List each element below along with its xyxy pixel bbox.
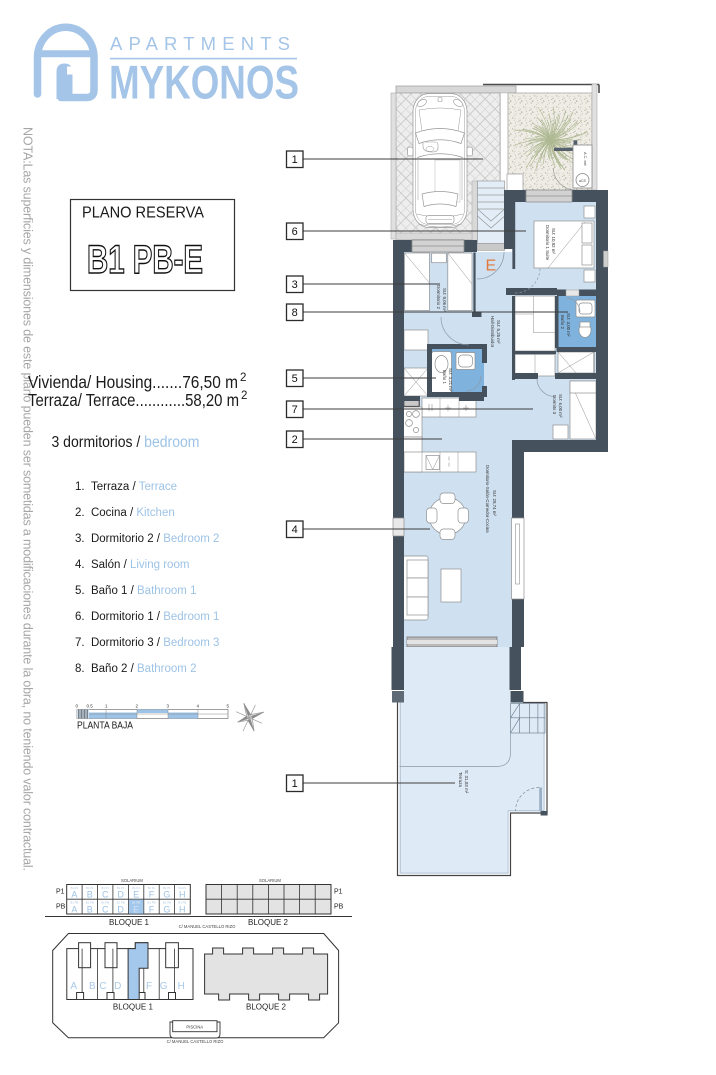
svg-text:H: H <box>179 890 186 900</box>
svg-text:Dormitorio 1 Suite: Dormitorio 1 Suite <box>545 225 550 261</box>
svg-text:A: A <box>70 981 77 992</box>
svg-text:NOTA:Las superficies y dimensi: NOTA:Las superficies y dimensiones de es… <box>21 127 35 871</box>
svg-text:B1 PB: B1 PB <box>117 901 125 905</box>
svg-text:PB: PB <box>334 904 344 911</box>
svg-text:B1 P1: B1 P1 <box>148 886 156 890</box>
svg-text:G: G <box>163 890 170 900</box>
svg-text:H: H <box>178 981 185 992</box>
svg-text:PB: PB <box>56 904 66 911</box>
svg-text:MYKONOS: MYKONOS <box>109 56 299 109</box>
svg-text:C: C <box>102 904 109 914</box>
svg-text:B1 PB: B1 PB <box>163 901 171 905</box>
svg-text:4: 4 <box>292 524 298 536</box>
svg-text:C: C <box>99 981 106 992</box>
svg-text:B1 P1: B1 P1 <box>178 886 186 890</box>
svg-text:Dormitorio 2: Dormitorio 2 <box>436 285 441 309</box>
svg-text:B1 PB: B1 PB <box>70 901 78 905</box>
svg-text:4. Salón / Living room: 4. Salón / Living room <box>75 559 189 571</box>
svg-text:A: A <box>71 904 77 914</box>
svg-text:F: F <box>149 890 155 900</box>
svg-text:C/ MANUEL CASTELLO RIZO: C/ MANUEL CASTELLO RIZO <box>167 1039 225 1044</box>
svg-text:B: B <box>87 904 93 914</box>
svg-text:B1 P1: B1 P1 <box>117 886 125 890</box>
svg-text:6: 6 <box>292 226 298 238</box>
svg-text:3: 3 <box>292 279 298 291</box>
svg-text:SU: 8,06 m²: SU: 8,06 m² <box>442 288 447 312</box>
svg-text:PLANTA BAJA: PLANTA BAJA <box>77 721 133 732</box>
svg-text:Vivienda/ Housing.......76,50: Vivienda/ Housing.......76,50 m <box>28 372 238 392</box>
svg-text:H: H <box>179 904 186 914</box>
svg-text:E: E <box>133 890 139 900</box>
svg-text:8. Baño 2 / Bathroom 2: 8. Baño 2 / Bathroom 2 <box>75 663 196 675</box>
svg-text:Dormito 3: Dormito 3 <box>552 395 557 415</box>
svg-text:1: 1 <box>292 778 298 790</box>
svg-text:D: D <box>117 904 124 914</box>
svg-text:B: B <box>89 981 96 992</box>
svg-text:3. Dormitorio 2 / Bedroom 2: 3. Dormitorio 2 / Bedroom 2 <box>75 533 219 545</box>
svg-text:F: F <box>146 981 152 992</box>
svg-text:P1: P1 <box>56 889 65 896</box>
svg-text:E: E <box>130 981 137 992</box>
svg-text:C: C <box>102 890 109 900</box>
svg-text:S: 31,03 m²: S: 31,03 m² <box>464 770 469 794</box>
svg-text:2: 2 <box>240 372 246 384</box>
svg-text:B1 PB: B1 PB <box>86 901 94 905</box>
svg-text:2. Cocina / Kitchen: 2. Cocina / Kitchen <box>75 507 175 519</box>
svg-text:aCS: aCS <box>579 179 586 183</box>
svg-text:BLOQUE 1: BLOQUE 1 <box>113 1003 154 1012</box>
svg-text:B1 P1: B1 P1 <box>163 886 171 890</box>
svg-text:1: 1 <box>292 154 298 166</box>
svg-text:SOLARIUM: SOLARIUM <box>259 878 281 883</box>
svg-text:C/ MANUEL CASTELLO RIZO: C/ MANUEL CASTELLO RIZO <box>179 924 237 929</box>
svg-text:B1 PB: B1 PB <box>101 901 109 905</box>
svg-text:SU: 5,25 m²: SU: 5,25 m² <box>496 320 501 344</box>
svg-text:B1 P1: B1 P1 <box>71 886 79 890</box>
svg-text:B1 P1: B1 P1 <box>101 886 109 890</box>
svg-text:B1 P1: B1 P1 <box>86 886 94 890</box>
svg-text:5. Baño 1 / Bathroom 1: 5. Baño 1 / Bathroom 1 <box>75 585 196 597</box>
svg-text:SU: 6,00 m²: SU: 6,00 m² <box>558 394 563 418</box>
svg-text:B1 PB: B1 PB <box>132 901 140 905</box>
svg-text:E: E <box>133 904 139 914</box>
svg-text:SU: 10,92 m²: SU: 10,92 m² <box>551 228 556 254</box>
svg-text:PLANO RESERVA: PLANO RESERVA <box>82 205 204 222</box>
svg-text:APARTMENTS: APARTMENTS <box>110 33 297 54</box>
svg-text:D: D <box>114 981 121 992</box>
svg-text:PISCINA: PISCINA <box>186 1025 203 1030</box>
svg-text:A: A <box>71 890 77 900</box>
svg-text:BLOQUE 1: BLOQUE 1 <box>109 918 150 927</box>
svg-text:Terraza/ Terrace............58: Terraza/ Terrace............58,20 m <box>28 390 239 410</box>
svg-text:Hall-Distribuidor: Hall-Distribuidor <box>490 316 495 348</box>
svg-text:SOLARIUM: SOLARIUM <box>121 878 143 883</box>
svg-text:5: 5 <box>292 373 298 385</box>
svg-text:Terraza: Terraza <box>458 772 463 788</box>
svg-text:F: F <box>149 904 155 914</box>
svg-text:D: D <box>117 890 124 900</box>
svg-text:2: 2 <box>241 390 247 402</box>
svg-text:G: G <box>163 904 170 914</box>
svg-text:3 dormitorios / bedroom: 3 dormitorios / bedroom <box>52 434 200 451</box>
svg-text:P1: P1 <box>334 889 343 896</box>
svg-text:Dormitorio-Salón-Comedor-Cocin: Dormitorio-Salón-Comedor-Cocina <box>485 465 490 533</box>
svg-text:B1 PB: B1 PB <box>148 901 156 905</box>
svg-text:BLOQUE 2: BLOQUE 2 <box>248 918 289 927</box>
svg-text:SU: 28,74 m²: SU: 28,74 m² <box>492 490 497 516</box>
svg-text:BLOQUE 2: BLOQUE 2 <box>246 1003 287 1012</box>
svg-text:Baño 1: Baño 1 <box>442 370 447 384</box>
svg-text:B1 P1: B1 P1 <box>132 886 140 890</box>
svg-text:8: 8 <box>292 307 298 319</box>
svg-text:B: B <box>87 890 93 900</box>
svg-text:6. Dormitorio 1 / Bedroom 1: 6. Dormitorio 1 / Bedroom 1 <box>75 611 219 623</box>
svg-text:G: G <box>160 981 168 992</box>
svg-text:Baño 2: Baño 2 <box>560 315 565 329</box>
svg-text:SU: 3,00 m²: SU: 3,00 m² <box>566 313 571 337</box>
svg-text:0.5: 0.5 <box>87 704 94 709</box>
svg-text:7: 7 <box>292 404 298 416</box>
svg-text:B1 PB: B1 PB <box>178 901 186 905</box>
svg-text:7. Dormitorio 3 / Bedroom 3: 7. Dormitorio 3 / Bedroom 3 <box>75 637 219 649</box>
svg-text:1. Terraza / Terrace: 1. Terraza / Terrace <box>75 481 177 493</box>
svg-text:B1 PB-E: B1 PB-E <box>87 238 203 282</box>
svg-text:2: 2 <box>292 434 298 446</box>
svg-text:SU: 3,21 m²: SU: 3,21 m² <box>448 368 453 392</box>
svg-text:A.C. ext: A.C. ext <box>583 152 587 166</box>
svg-text:E: E <box>486 258 497 275</box>
